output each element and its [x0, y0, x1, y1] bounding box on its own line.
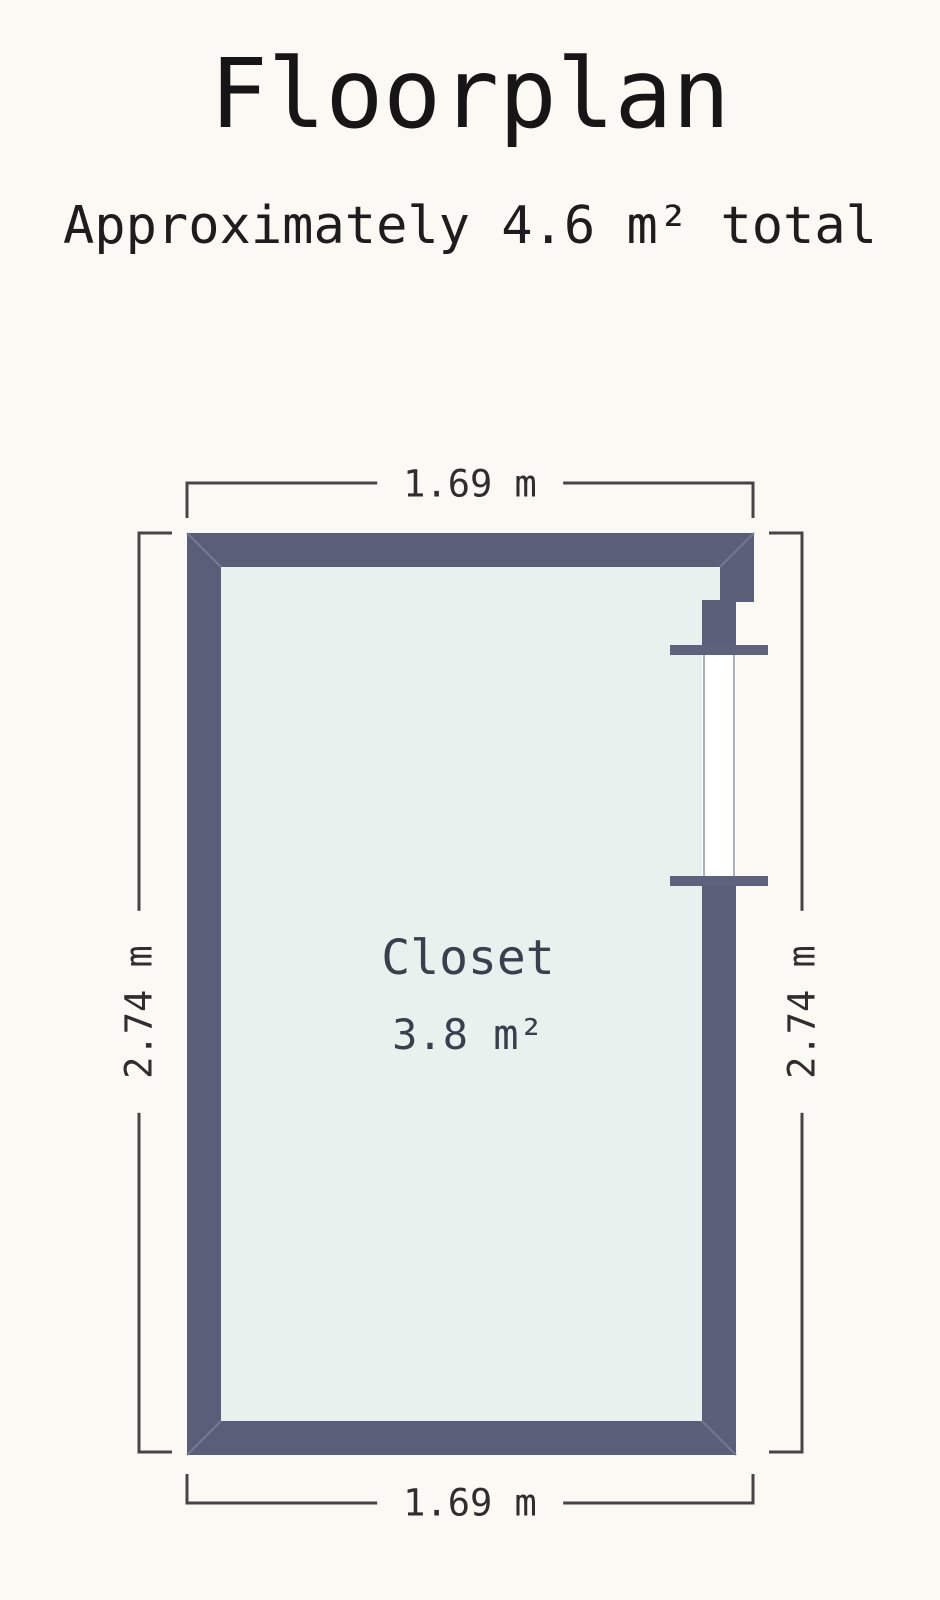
door-lintel-top — [670, 645, 768, 655]
dim-label-right: 2.74 m — [782, 911, 823, 1113]
wall-left — [187, 533, 221, 1455]
dim-label-left: 2.74 m — [119, 911, 160, 1113]
wall-top — [187, 533, 754, 567]
dim-label-top: 1.69 m — [377, 464, 563, 505]
room-name-label: Closet — [381, 934, 554, 982]
floorplan-drawing — [0, 0, 940, 1600]
door-lintel-bottom — [670, 876, 768, 886]
room-interior — [221, 567, 720, 1421]
door-opening — [702, 654, 736, 877]
wall-right-jog — [702, 600, 736, 647]
room-area-label: 3.8 m² — [392, 1014, 544, 1056]
wall-bottom — [187, 1421, 736, 1455]
dim-label-bottom: 1.69 m — [377, 1483, 563, 1524]
wall-right-upper — [720, 533, 754, 602]
floorplan-page: Floorplan Approximately 4.6 m² total — [0, 0, 940, 1600]
